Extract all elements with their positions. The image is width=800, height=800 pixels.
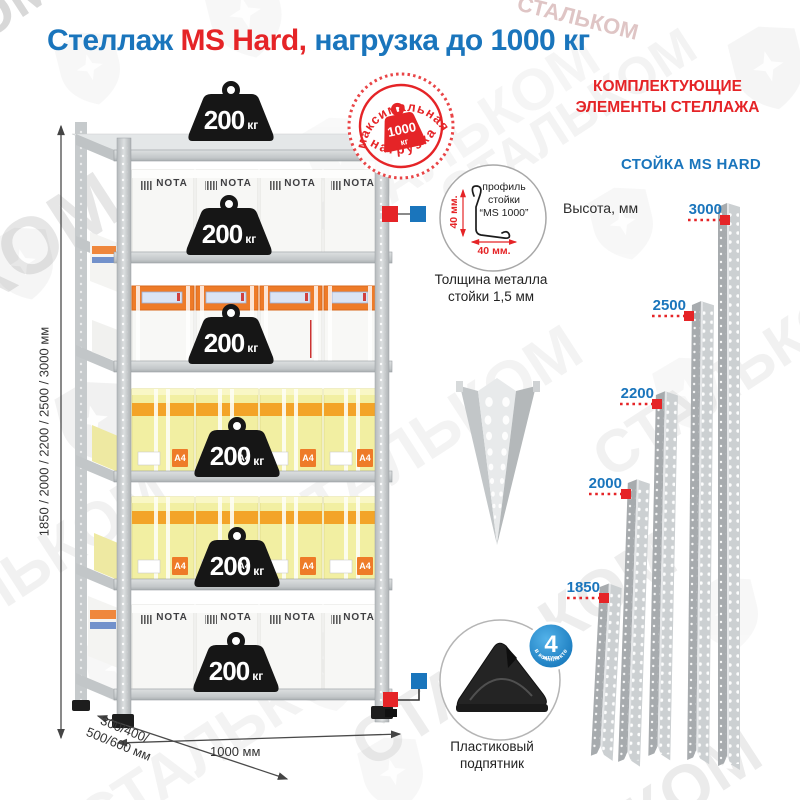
a4-label: A4 bbox=[172, 561, 188, 571]
box-brand-label: NOTA bbox=[152, 178, 192, 189]
load-value: 200 bbox=[209, 656, 249, 687]
load-unit: кг bbox=[253, 564, 264, 578]
box bbox=[132, 286, 194, 361]
profile-text-line1: профиль bbox=[472, 181, 536, 193]
profile-dim-vertical: 40 мм. bbox=[448, 192, 460, 232]
shelf-load-label: 200кг bbox=[184, 219, 274, 250]
shelf-bar bbox=[114, 150, 392, 161]
a4-label: A4 bbox=[236, 561, 252, 571]
box-brand-label: NOTA bbox=[280, 612, 320, 623]
red-marker-square bbox=[383, 692, 398, 707]
title-part-3: нагрузка до 1000 кг bbox=[306, 24, 589, 57]
components-header-line2: ЭЛЕМЕНТЫ СТЕЛЛАЖА bbox=[535, 97, 800, 118]
side-box-hints bbox=[88, 232, 118, 668]
load-unit: кг bbox=[247, 118, 258, 132]
box-brand-label: NOTA bbox=[152, 612, 192, 623]
profile-dim-horizontal: 40 мм. bbox=[472, 245, 516, 257]
a4-label: A4 bbox=[236, 453, 252, 463]
a4-label: A4 bbox=[300, 453, 316, 463]
product-infographic: СТАЛЬКОМ СТАЛЬКОМ СТАЛЬКОМ СТАЛЬКОМ СТАЛ… bbox=[0, 0, 800, 800]
badge-count: 4 bbox=[544, 631, 558, 658]
page-title: Стеллаж MS Hard, нагрузка до 1000 кг bbox=[47, 24, 590, 58]
shelf-load-label: 200кг bbox=[186, 328, 276, 359]
post-3000 bbox=[718, 203, 740, 770]
post-height-2000: 2000 bbox=[562, 475, 622, 492]
profile-text-line2: стойки bbox=[472, 194, 536, 206]
profile-text-line3: “MS 1000” bbox=[472, 207, 536, 219]
post-height-1850: 1850 bbox=[540, 579, 600, 596]
count-badge: 4 штуки в комплекте bbox=[528, 623, 574, 669]
load-value: 200 bbox=[202, 219, 242, 250]
rack-height-dimension: 1850 / 2000 / 2200 / 2500 / 3000 мм bbox=[37, 252, 52, 612]
box-brand-label: NOTA bbox=[216, 178, 256, 189]
foot-caption-line1: Пластиковый bbox=[417, 739, 567, 754]
a4-label: A4 bbox=[357, 453, 373, 463]
box-brand-label: NOTA bbox=[339, 612, 379, 623]
shelf-load-label: 200кг bbox=[186, 105, 276, 136]
shelf-load-label: 200кг bbox=[191, 656, 281, 687]
load-value: 200 bbox=[204, 328, 244, 359]
foot-caption-line2: подпятник bbox=[417, 756, 567, 771]
box-brand-label: NOTA bbox=[280, 178, 320, 189]
load-unit: кг bbox=[252, 669, 263, 683]
thickness-caption-line2: стойки 1,5 мм bbox=[416, 289, 566, 304]
title-part-2: MS Hard, bbox=[180, 24, 306, 57]
title-part-1: Стеллаж bbox=[47, 24, 180, 57]
a4-label: A4 bbox=[357, 561, 373, 571]
a4-label: A4 bbox=[172, 453, 188, 463]
load-unit: кг bbox=[245, 232, 256, 246]
blue-marker-square bbox=[411, 673, 427, 689]
post-height-2500: 2500 bbox=[626, 297, 686, 314]
box-brand-label: NOTA bbox=[216, 612, 256, 623]
box-brand-label: NOTA bbox=[339, 178, 379, 189]
post-height-2200: 2200 bbox=[594, 385, 654, 402]
plastic-foot-diagram: 4 штуки в комплекте bbox=[440, 620, 574, 740]
corner-post-piece bbox=[456, 378, 540, 545]
load-value: 200 bbox=[204, 105, 244, 136]
post-subheader: СТОЙКА MS HARD bbox=[576, 156, 800, 173]
box bbox=[324, 286, 377, 361]
components-header-line1: КОМПЛЕКТУЮЩИЕ bbox=[535, 76, 800, 97]
post-height-3000: 3000 bbox=[662, 201, 722, 218]
illustration-layer: СТАЛЬКОМ СТАЛЬКОМ СТАЛЬКОМ СТАЛЬКОМ СТАЛ… bbox=[0, 0, 800, 800]
rack-width-dimension: 1000 мм bbox=[210, 744, 260, 759]
red-marker-square bbox=[382, 206, 398, 222]
load-unit: кг bbox=[247, 341, 258, 355]
components-header: КОМПЛЕКТУЮЩИЕ ЭЛЕМЕНТЫ СТЕЛЛАЖА bbox=[535, 76, 800, 118]
post-2000 bbox=[618, 479, 650, 767]
a4-label: A4 bbox=[300, 561, 316, 571]
height-units-label: Высота, мм bbox=[563, 200, 638, 216]
thickness-caption-line1: Толщина металла bbox=[416, 272, 566, 287]
load-unit: кг bbox=[253, 454, 264, 468]
blue-marker-square bbox=[410, 206, 426, 222]
